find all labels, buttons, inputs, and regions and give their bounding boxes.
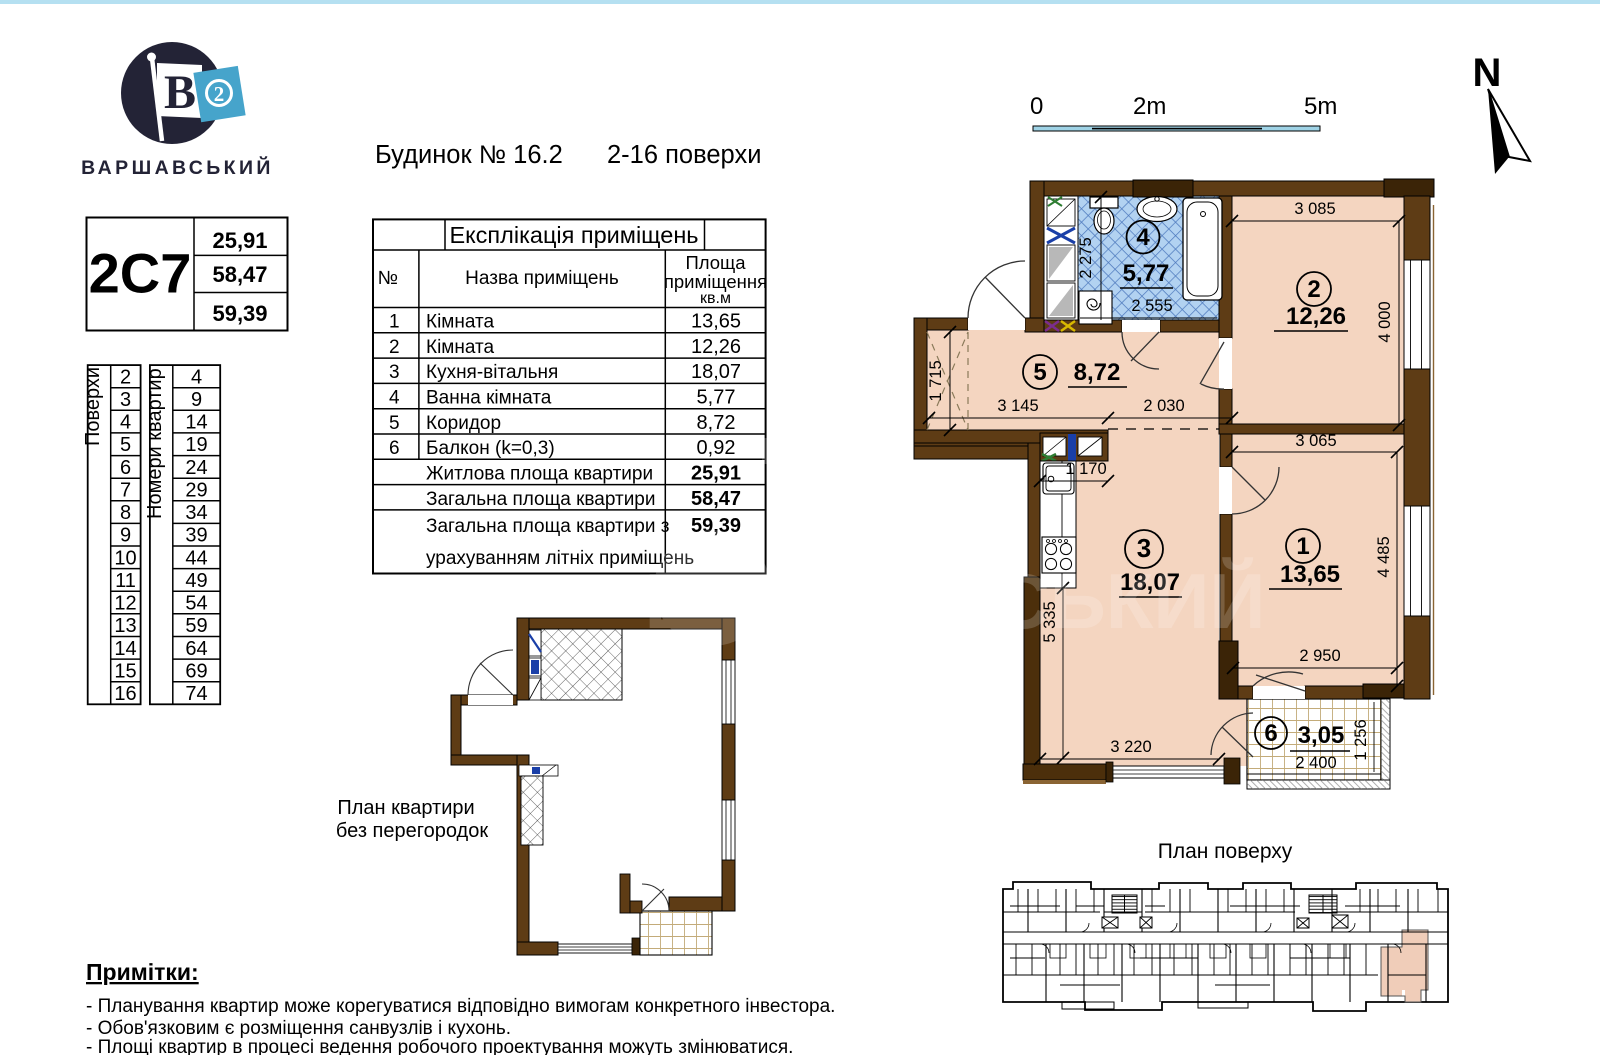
svg-text:N: N <box>1473 51 1502 95</box>
svg-text:Кімната: Кімната <box>426 312 494 333</box>
svg-text:12,26: 12,26 <box>691 336 741 358</box>
svg-text:1 715: 1 715 <box>927 360 945 401</box>
svg-text:Кухня-вітальня: Кухня-вітальня <box>426 362 558 383</box>
svg-text:2: 2 <box>120 366 131 388</box>
svg-text:13,65: 13,65 <box>1280 561 1340 588</box>
svg-text:39: 39 <box>185 525 207 547</box>
svg-text:2m: 2m <box>1133 93 1166 120</box>
svg-text:1: 1 <box>1296 533 1309 560</box>
svg-text:25,91: 25,91 <box>212 228 267 253</box>
svg-text:5m: 5m <box>1304 93 1337 120</box>
svg-text:4: 4 <box>1136 224 1150 251</box>
svg-text:3 065: 3 065 <box>1295 432 1336 450</box>
svg-text:3,05: 3,05 <box>1298 722 1345 749</box>
svg-text:3 085: 3 085 <box>1294 200 1335 218</box>
svg-text:58,47: 58,47 <box>212 262 267 287</box>
svg-text:2-16 поверхи: 2-16 поверхи <box>607 141 761 169</box>
svg-text:25,91: 25,91 <box>691 463 741 485</box>
svg-text:1 256: 1 256 <box>1352 719 1370 760</box>
svg-text:12: 12 <box>114 593 136 615</box>
svg-text:34: 34 <box>185 502 207 524</box>
svg-text:13,65: 13,65 <box>691 311 741 333</box>
svg-text:ВАРШАВСЬКИЙ: ВАРШАВСЬКИЙ <box>645 557 1266 645</box>
svg-text:74: 74 <box>185 683 207 705</box>
svg-text:2: 2 <box>1307 276 1320 303</box>
svg-text:- Планування квартир може коре: - Планування квартир може корегуватися в… <box>86 996 835 1017</box>
svg-text:49: 49 <box>185 570 207 592</box>
svg-text:Ванна кімната: Ванна кімната <box>426 388 552 409</box>
svg-text:5: 5 <box>1033 359 1046 386</box>
svg-text:24: 24 <box>185 457 207 479</box>
svg-text:4: 4 <box>120 412 131 434</box>
svg-text:8,72: 8,72 <box>1074 359 1121 386</box>
svg-text:ВАРШАВСЬКИЙ: ВАРШАВСЬКИЙ <box>81 155 274 179</box>
svg-text:8,72: 8,72 <box>697 412 736 434</box>
svg-text:Номери квартир: Номери квартир <box>144 368 166 519</box>
svg-text:План поверху: План поверху <box>1158 840 1293 863</box>
svg-text:16: 16 <box>114 683 136 705</box>
svg-text:1 170: 1 170 <box>1065 460 1106 478</box>
svg-text:№: № <box>378 268 398 289</box>
svg-text:59,39: 59,39 <box>212 301 267 326</box>
svg-text:Назва приміщень: Назва приміщень <box>465 268 619 289</box>
svg-text:Житлова площа квартири: Житлова площа квартири <box>426 464 653 485</box>
svg-text:3: 3 <box>389 362 400 383</box>
svg-text:Коридор: Коридор <box>426 413 501 434</box>
svg-text:6: 6 <box>389 438 400 459</box>
svg-text:2 950: 2 950 <box>1299 647 1340 665</box>
svg-text:3: 3 <box>120 389 131 411</box>
svg-text:14: 14 <box>114 638 136 660</box>
svg-text:1: 1 <box>389 312 400 333</box>
svg-text:14: 14 <box>185 412 207 434</box>
svg-text:Загальна площа квартири з: Загальна площа квартири з <box>426 516 669 537</box>
svg-text:15: 15 <box>114 660 136 682</box>
svg-text:4 485: 4 485 <box>1375 536 1393 577</box>
svg-text:4 000: 4 000 <box>1376 301 1394 342</box>
svg-text:Загальна площа квартири: Загальна площа квартири <box>426 489 655 510</box>
svg-text:Експлікація приміщень: Експлікація приміщень <box>449 222 698 248</box>
svg-text:6: 6 <box>120 457 131 479</box>
svg-text:5,77: 5,77 <box>697 387 736 409</box>
svg-text:10: 10 <box>114 547 136 569</box>
svg-text:6: 6 <box>1264 720 1277 747</box>
svg-text:13: 13 <box>114 615 136 637</box>
svg-text:2: 2 <box>389 337 400 358</box>
svg-text:64: 64 <box>185 638 207 660</box>
svg-text:5,77: 5,77 <box>1123 260 1170 287</box>
svg-text:В: В <box>164 66 196 119</box>
svg-text:11: 11 <box>115 570 136 592</box>
svg-text:приміщення: приміщення <box>664 271 767 292</box>
svg-text:29: 29 <box>185 480 207 502</box>
svg-text:- Площі квартир в процесі веде: - Площі квартир в процесі ведення робочо… <box>86 1037 793 1055</box>
svg-text:3 220: 3 220 <box>1110 738 1151 756</box>
svg-text:- Обов'язковим є розміщення са: - Обов'язковим є розміщення санвузлів і … <box>86 1018 511 1039</box>
svg-text:5: 5 <box>120 434 131 456</box>
svg-text:44: 44 <box>185 547 207 569</box>
svg-text:Кімната: Кімната <box>426 337 494 358</box>
svg-text:2 400: 2 400 <box>1295 754 1336 772</box>
svg-text:8: 8 <box>120 502 131 524</box>
svg-text:2 030: 2 030 <box>1143 397 1184 415</box>
svg-text:Балкон (k=0,3): Балкон (k=0,3) <box>426 438 555 459</box>
svg-text:19: 19 <box>185 434 207 456</box>
svg-text:План квартири: План квартири <box>337 797 474 819</box>
svg-text:кв.м: кв.м <box>700 290 731 307</box>
svg-text:54: 54 <box>185 593 207 615</box>
svg-text:59: 59 <box>185 615 207 637</box>
svg-text:7: 7 <box>120 480 131 502</box>
svg-text:2С7: 2С7 <box>89 242 192 305</box>
svg-text:Поверхи: Поверхи <box>82 367 104 446</box>
svg-text:2: 2 <box>214 82 225 106</box>
svg-text:4: 4 <box>389 388 400 409</box>
svg-text:0: 0 <box>1030 93 1043 120</box>
svg-text:без перегородок: без перегородок <box>336 820 488 842</box>
svg-text:3 145: 3 145 <box>997 397 1038 415</box>
svg-text:69: 69 <box>185 660 207 682</box>
svg-text:2 555: 2 555 <box>1131 297 1172 315</box>
svg-text:12,26: 12,26 <box>1286 303 1346 330</box>
svg-text:Площа: Площа <box>685 252 746 273</box>
svg-text:0,92: 0,92 <box>697 437 736 459</box>
svg-text:Примітки:: Примітки: <box>86 959 199 985</box>
svg-text:58,47: 58,47 <box>691 488 741 510</box>
svg-text:2 275: 2 275 <box>1077 237 1095 278</box>
svg-text:9: 9 <box>120 525 131 547</box>
svg-text:9: 9 <box>191 389 202 411</box>
svg-text:5: 5 <box>389 413 400 434</box>
svg-text:4: 4 <box>191 366 202 388</box>
svg-text:18,07: 18,07 <box>691 361 741 383</box>
svg-text:Будинок № 16.2: Будинок № 16.2 <box>375 141 563 169</box>
